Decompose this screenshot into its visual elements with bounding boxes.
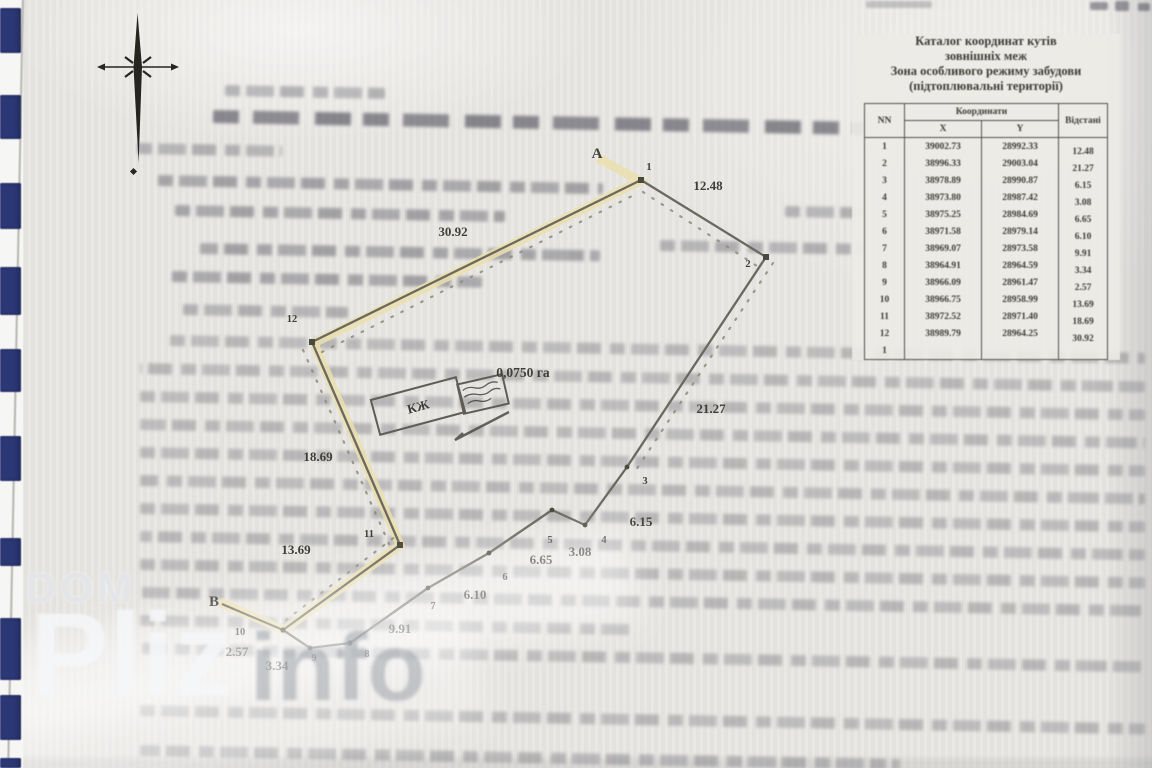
edge-label-3-4: 6.15 (630, 514, 653, 529)
page-smudge (1138, 3, 1150, 11)
edge-label-1-2: 12.48 (693, 178, 723, 193)
binder-tab (0, 8, 21, 53)
vertex-label-3: 3 (642, 476, 647, 487)
binder-tab (0, 538, 21, 566)
binder-tab (0, 436, 21, 481)
page-smudge (1115, 1, 1129, 11)
scanned-survey-page: Каталог координат кутів зовнішніх меж Зо… (0, 0, 1152, 768)
watermark-info: info (250, 620, 426, 716)
building-outline: КЖ (371, 377, 465, 435)
vertex-label-12: 12 (287, 314, 298, 325)
page-smudge (866, 1, 932, 8)
binder-tab (0, 95, 21, 139)
binder-tab (0, 695, 21, 740)
vertex-label-2: 2 (745, 259, 750, 270)
annex-strike-mark (455, 412, 509, 440)
binder-tab (0, 618, 21, 680)
vertex-label-11: 11 (364, 529, 374, 540)
binder-tab (0, 758, 21, 768)
watermark-pliz: Pliz (30, 596, 233, 714)
point-a-label: А (592, 146, 603, 162)
binder-tab (0, 267, 21, 315)
edge-label-11-12: 18.69 (303, 449, 333, 464)
binder-tab (0, 183, 21, 229)
edge-label-2-3: 21.27 (696, 401, 726, 416)
vertex-label-1: 1 (646, 162, 651, 173)
area-label: 0,0750 га (496, 365, 550, 380)
binder-tab (0, 349, 21, 392)
handwritten-note (462, 381, 502, 406)
page-smudge (1090, 2, 1108, 10)
edge-label-12-1: 30.92 (438, 224, 467, 239)
building-label: КЖ (405, 396, 431, 416)
edge-label-10-11: 13.69 (281, 542, 311, 557)
north-arrow-icon (97, 13, 179, 175)
